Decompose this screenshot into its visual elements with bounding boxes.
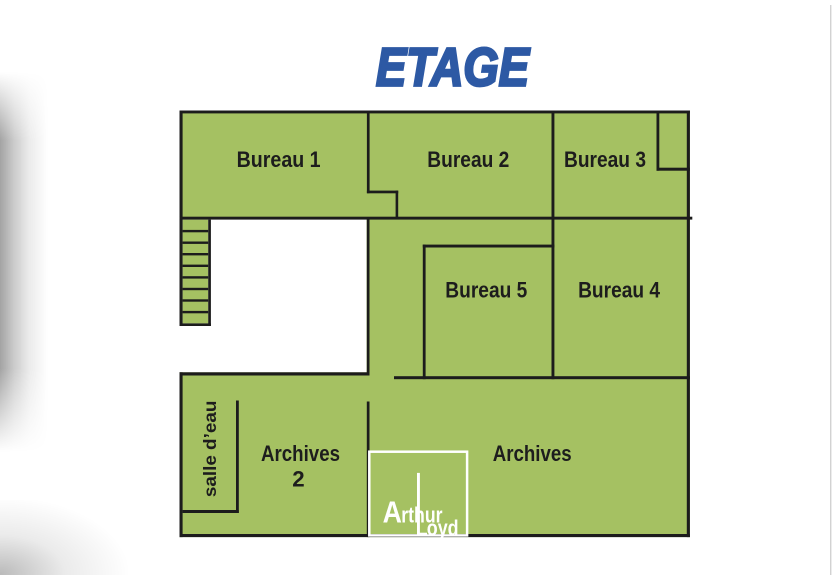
svg-text:salle d’eau: salle d’eau [200, 401, 220, 498]
svg-text:Archives: Archives [493, 441, 572, 466]
svg-text:ETAGE: ETAGE [376, 38, 531, 98]
svg-text:2: 2 [292, 466, 304, 491]
svg-text:Archives: Archives [261, 441, 340, 466]
svg-text:Bureau 5: Bureau 5 [445, 278, 527, 303]
svg-text:oyd: oyd [427, 516, 459, 541]
svg-text:Bureau 3: Bureau 3 [564, 147, 646, 172]
svg-text:Bureau 1: Bureau 1 [237, 147, 321, 172]
svg-text:A: A [383, 494, 402, 529]
svg-text:Bureau 4: Bureau 4 [578, 278, 661, 303]
svg-text:Bureau 2: Bureau 2 [427, 147, 509, 172]
